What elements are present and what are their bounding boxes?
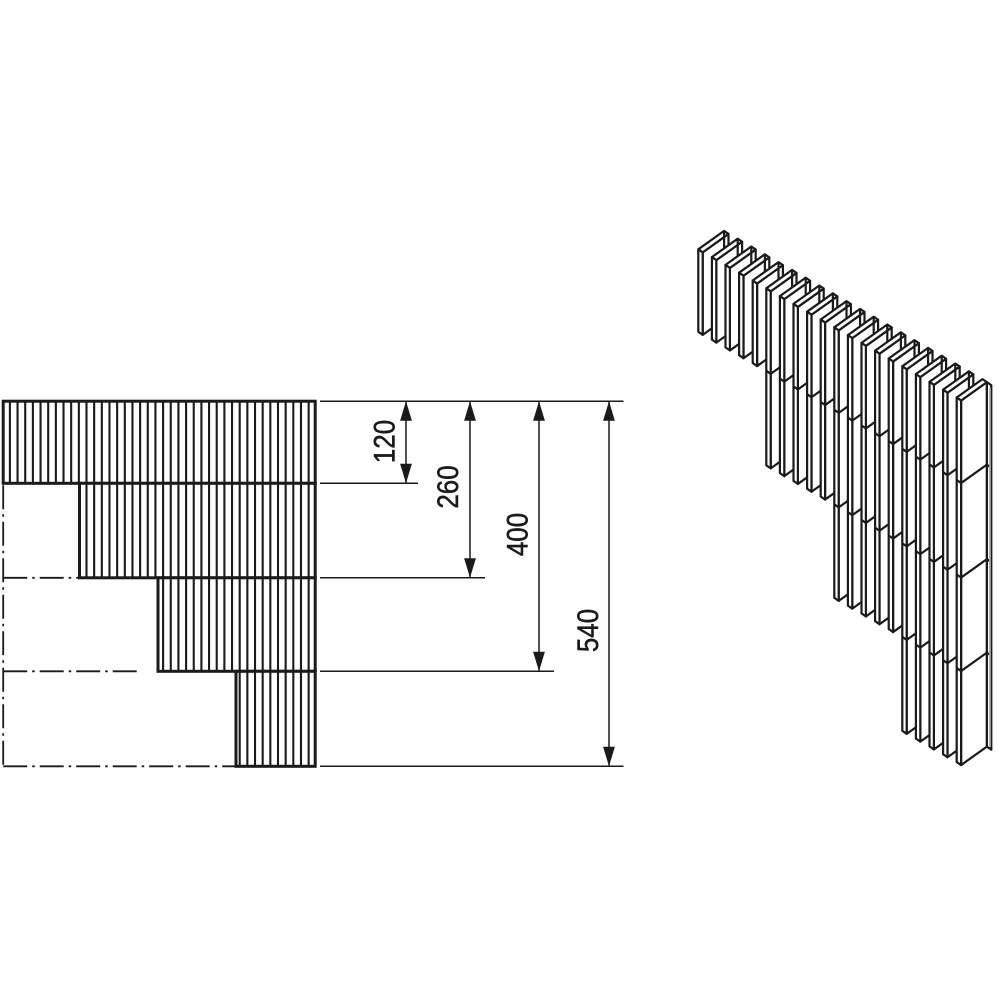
svg-text:400: 400 <box>501 513 534 556</box>
svg-text:120: 120 <box>368 420 401 463</box>
svg-text:540: 540 <box>571 609 604 652</box>
svg-text:260: 260 <box>432 465 465 508</box>
